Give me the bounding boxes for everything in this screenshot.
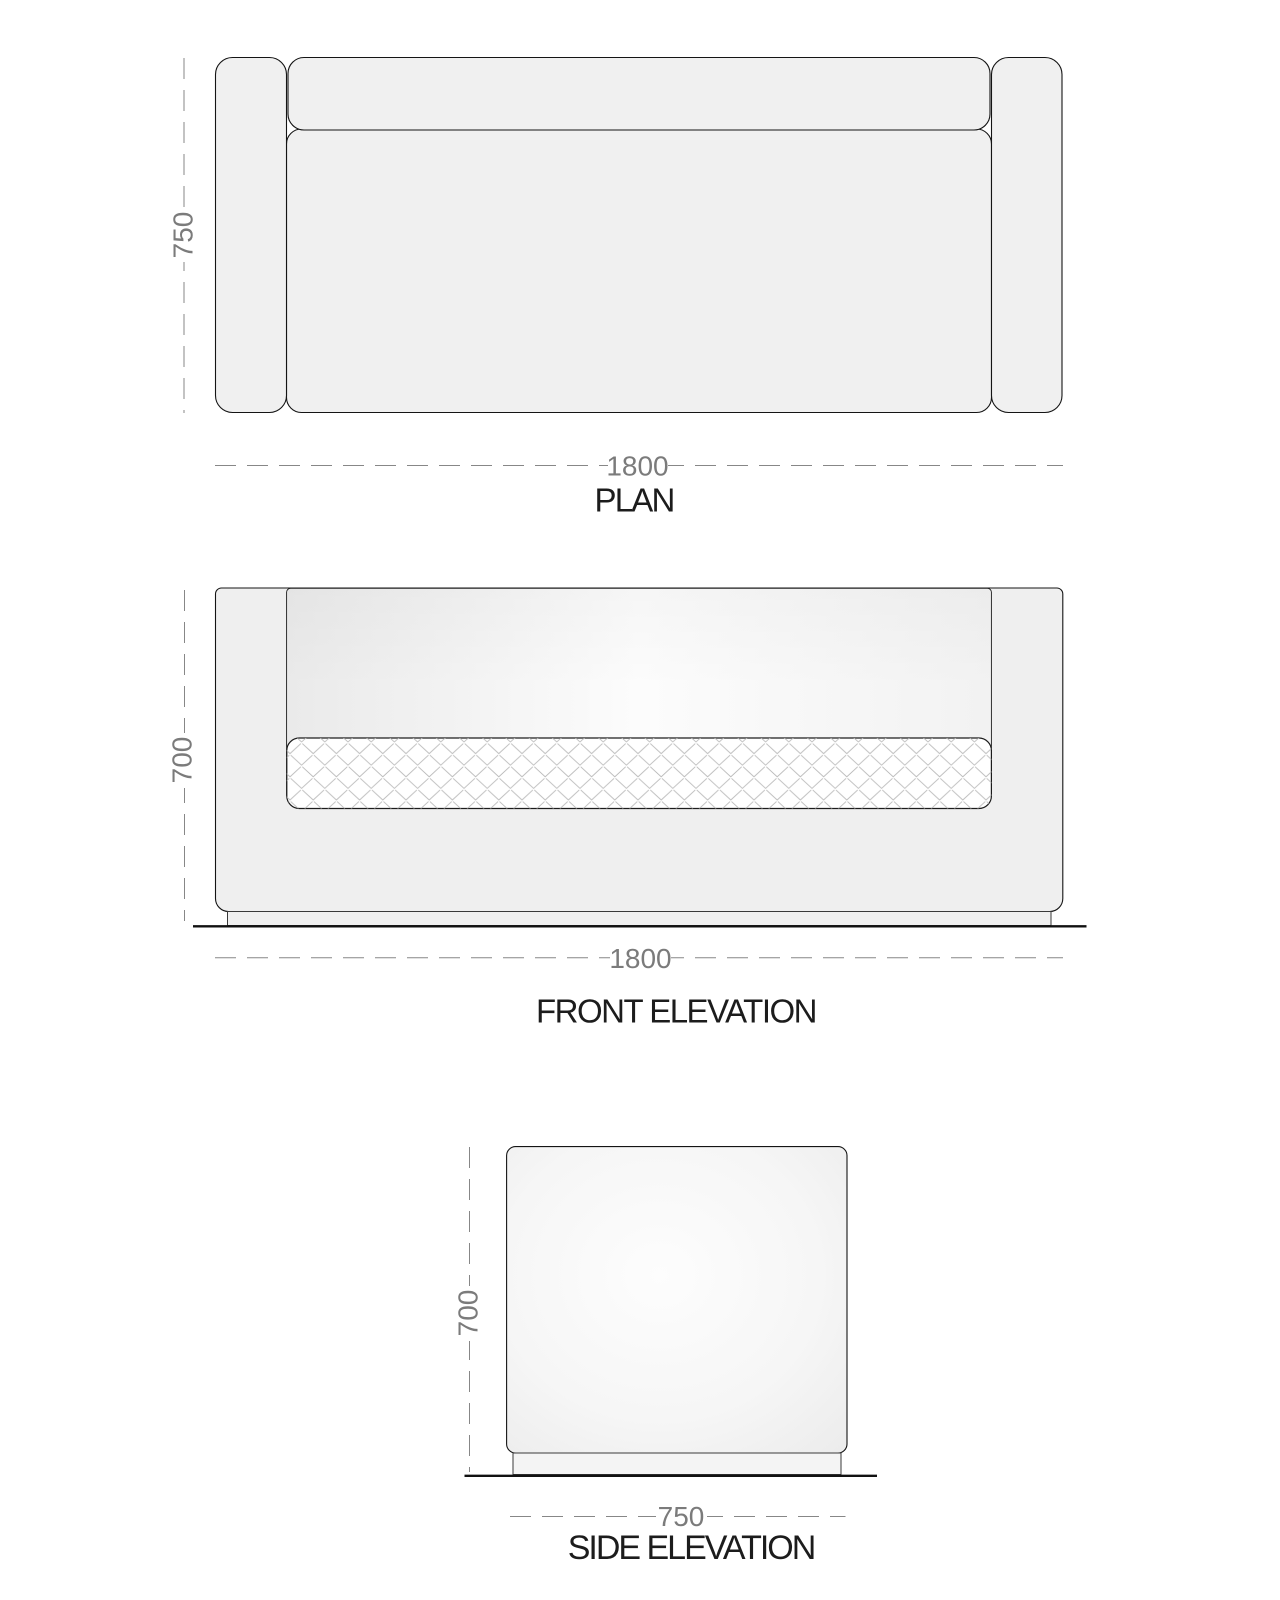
svg-text:PLAN: PLAN <box>594 482 673 519</box>
svg-text:700: 700 <box>167 737 198 784</box>
svg-text:1800: 1800 <box>609 943 671 974</box>
svg-text:SIDE ELEVATION: SIDE ELEVATION <box>568 1529 815 1567</box>
svg-text:750: 750 <box>658 1501 705 1532</box>
svg-text:1800: 1800 <box>606 451 668 482</box>
svg-text:FRONT ELEVATION: FRONT ELEVATION <box>536 993 816 1030</box>
svg-text:750: 750 <box>168 212 199 259</box>
svg-text:700: 700 <box>453 1290 484 1337</box>
